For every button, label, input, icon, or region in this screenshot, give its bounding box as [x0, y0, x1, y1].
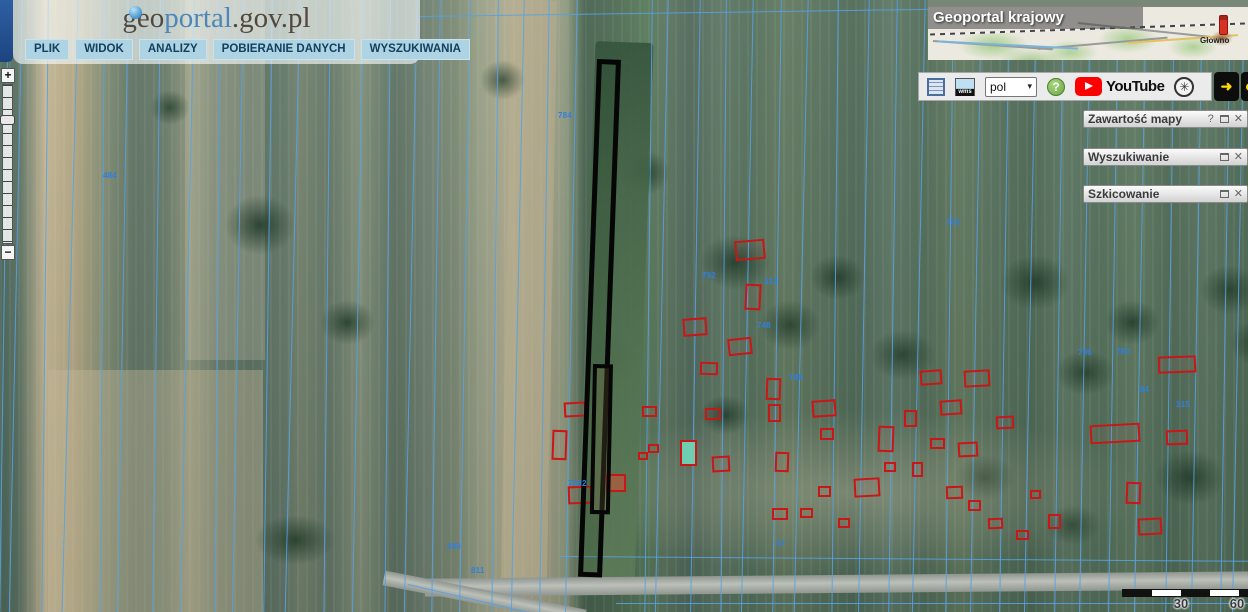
building-outline	[766, 378, 782, 401]
building-outline	[744, 284, 761, 311]
visibility-eye-button[interactable]	[1241, 72, 1248, 101]
building-outline	[638, 452, 648, 460]
building-outline	[1126, 482, 1142, 505]
building-outline	[768, 404, 781, 422]
parcel-number-label: 788	[789, 374, 803, 382]
menu-item-widok[interactable]: WIDOK	[75, 39, 133, 60]
parcel-number-label: 7002	[568, 480, 587, 488]
minimap-top-band	[928, 0, 1248, 7]
parcel-number-label: 784	[558, 112, 572, 120]
language-selected-value: pol	[990, 80, 1006, 94]
parcel-number-label: 490	[447, 543, 461, 551]
scale-bar-value: 30	[1166, 596, 1196, 611]
panel-title: Zawartość mapy	[1088, 112, 1203, 126]
parcel-number-label: 84	[1140, 386, 1149, 394]
header-panel: geoportal.gov.pl PLIKWIDOKANALIZYPOBIERA…	[13, 0, 420, 64]
building-outline	[904, 410, 917, 427]
building-outline	[1090, 423, 1141, 445]
layers-grid-icon[interactable]	[927, 78, 945, 96]
building-outline	[551, 430, 567, 461]
parcel-number-label: 782	[1116, 348, 1130, 356]
panel-minimize-icon[interactable]	[1220, 115, 1229, 123]
building-outline	[700, 362, 718, 376]
wheel-icon-button[interactable]: ✳	[1174, 77, 1194, 97]
panel-minimize-icon[interactable]	[1220, 190, 1229, 198]
building-outline	[930, 438, 945, 449]
next-arrow-button[interactable]: ➜	[1214, 72, 1239, 101]
building-outline	[912, 462, 923, 477]
chevron-down-icon: ▾	[1027, 81, 1032, 92]
panel-help-icon[interactable]: ?	[1208, 114, 1214, 125]
logo-portal: portal	[164, 2, 232, 34]
building-outline	[838, 518, 850, 528]
panel-close-icon[interactable]: ✕	[1234, 152, 1243, 163]
parcel-boundary-line	[616, 603, 1248, 604]
geoportal-logo[interactable]: geoportal.gov.pl	[13, 2, 420, 34]
overview-minimap[interactable]: Głowno Geoportal krajowy	[928, 0, 1248, 60]
minimap-city-label: Głowno	[1200, 36, 1229, 45]
logo-globe-icon	[129, 6, 142, 19]
building-outline	[878, 426, 895, 453]
youtube-button[interactable]: YouTube	[1075, 77, 1164, 96]
building-outline	[727, 337, 753, 356]
building-outline	[1138, 517, 1163, 535]
panel-wyszukiwanie: Wyszukiwanie✕	[1083, 148, 1248, 166]
panel-minimize-icon[interactable]	[1220, 153, 1229, 161]
left-accent-bar	[0, 0, 13, 62]
parcel-number-label: 811	[471, 567, 485, 575]
panel-zawarto-mapy: Zawartość mapy?✕	[1083, 110, 1248, 128]
main-menu-bar: PLIKWIDOKANALIZYPOBIERANIE DANYCHWYSZUKI…	[25, 39, 470, 60]
building-outline	[884, 462, 896, 472]
building-outline	[996, 416, 1015, 430]
parcel-number-label: 796	[1078, 349, 1092, 357]
zoom-slider-track[interactable]	[2, 84, 13, 244]
parcel-number-label: 748	[757, 322, 771, 330]
building-outline	[920, 369, 943, 385]
building-outline	[940, 399, 963, 415]
parcel-number-label: 484	[103, 172, 117, 180]
building-outline	[1166, 430, 1189, 446]
panel-close-icon[interactable]: ✕	[1234, 114, 1243, 125]
wms-icon-label: wms	[956, 89, 974, 96]
logo-suffix: .gov.pl	[232, 2, 311, 34]
menu-item-plik[interactable]: PLIK	[25, 39, 69, 60]
parcel-number-label: 313	[764, 278, 778, 286]
wms-icon[interactable]: wms	[955, 78, 975, 96]
panel-title: Szkicowanie	[1088, 187, 1214, 201]
building-outline	[705, 408, 721, 420]
help-button[interactable]: ?	[1047, 78, 1065, 96]
panel-title: Wyszukiwanie	[1088, 150, 1214, 164]
building-outline	[811, 399, 836, 418]
building-outline	[682, 317, 707, 337]
building-outline	[1158, 355, 1197, 373]
building-outline	[1048, 514, 1061, 529]
parcel-number-label: 315	[1176, 401, 1190, 409]
zoom-in-button[interactable]: +	[1, 68, 15, 83]
menu-item-wyszukiwania[interactable]: WYSZUKIWANIA	[361, 39, 470, 60]
panel-close-icon[interactable]: ✕	[1234, 189, 1243, 200]
minimap-location-marker	[1219, 15, 1228, 35]
parcel-number-label: 792	[702, 272, 716, 280]
building-outline	[968, 500, 981, 511]
building-outline	[775, 452, 790, 472]
panel-szkicowanie: Szkicowanie✕	[1083, 185, 1248, 203]
building-outline	[648, 444, 659, 453]
youtube-play-icon	[1075, 77, 1102, 96]
building-outline	[1016, 530, 1029, 540]
geoportal-app: 4847847667923137487884779678284315700249…	[0, 0, 1248, 612]
building-outline	[964, 369, 991, 387]
youtube-label: YouTube	[1106, 78, 1164, 95]
building-outline	[818, 486, 831, 497]
map-toolbar: wms pol ▾ ? YouTube ✳	[918, 72, 1212, 101]
building-outline	[854, 477, 881, 497]
menu-item-analizy[interactable]: ANALIZY	[139, 39, 207, 60]
building-outline	[1030, 490, 1041, 499]
building-outline	[772, 508, 788, 520]
zoom-slider-handle[interactable]	[0, 115, 15, 125]
minimap-title: Geoportal krajowy	[933, 9, 1064, 26]
building-outline	[988, 518, 1003, 530]
logo-geo: geo	[122, 2, 164, 34]
building-outline	[734, 239, 766, 262]
parcel-number-label: 47	[776, 540, 785, 548]
scale-bar-value: 60	[1222, 596, 1248, 611]
language-select[interactable]: pol ▾	[985, 77, 1037, 97]
highlighted-parcel	[590, 364, 613, 514]
building-outline-filled	[680, 440, 697, 466]
building-outline	[642, 406, 657, 417]
building-outline	[958, 441, 979, 457]
zoom-out-button[interactable]: −	[1, 245, 15, 260]
menu-item-pobieranie-danych[interactable]: POBIERANIE DANYCH	[213, 39, 355, 60]
building-outline	[820, 428, 834, 440]
parcel-number-label: 766	[946, 219, 960, 227]
building-outline	[712, 456, 731, 473]
building-outline	[800, 508, 813, 518]
building-outline	[946, 486, 963, 500]
